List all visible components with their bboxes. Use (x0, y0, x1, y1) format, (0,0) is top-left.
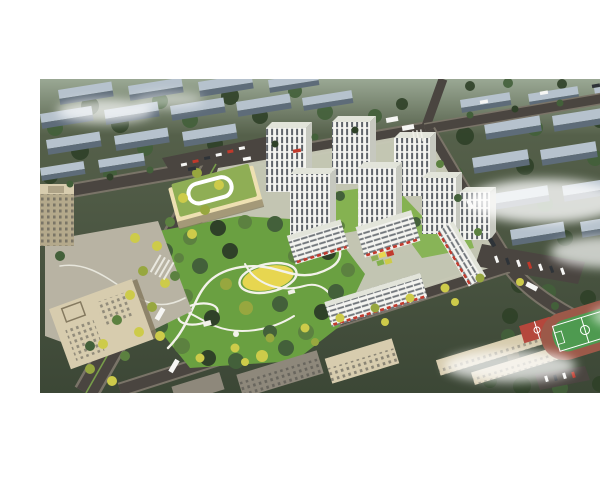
tower (422, 172, 462, 234)
office-tower-left (40, 184, 74, 246)
aerial-render: Aerial 3D rendering of a residential dev… (40, 16, 600, 466)
aerial-render-figure: Aerial 3D rendering of a residential dev… (40, 16, 600, 466)
